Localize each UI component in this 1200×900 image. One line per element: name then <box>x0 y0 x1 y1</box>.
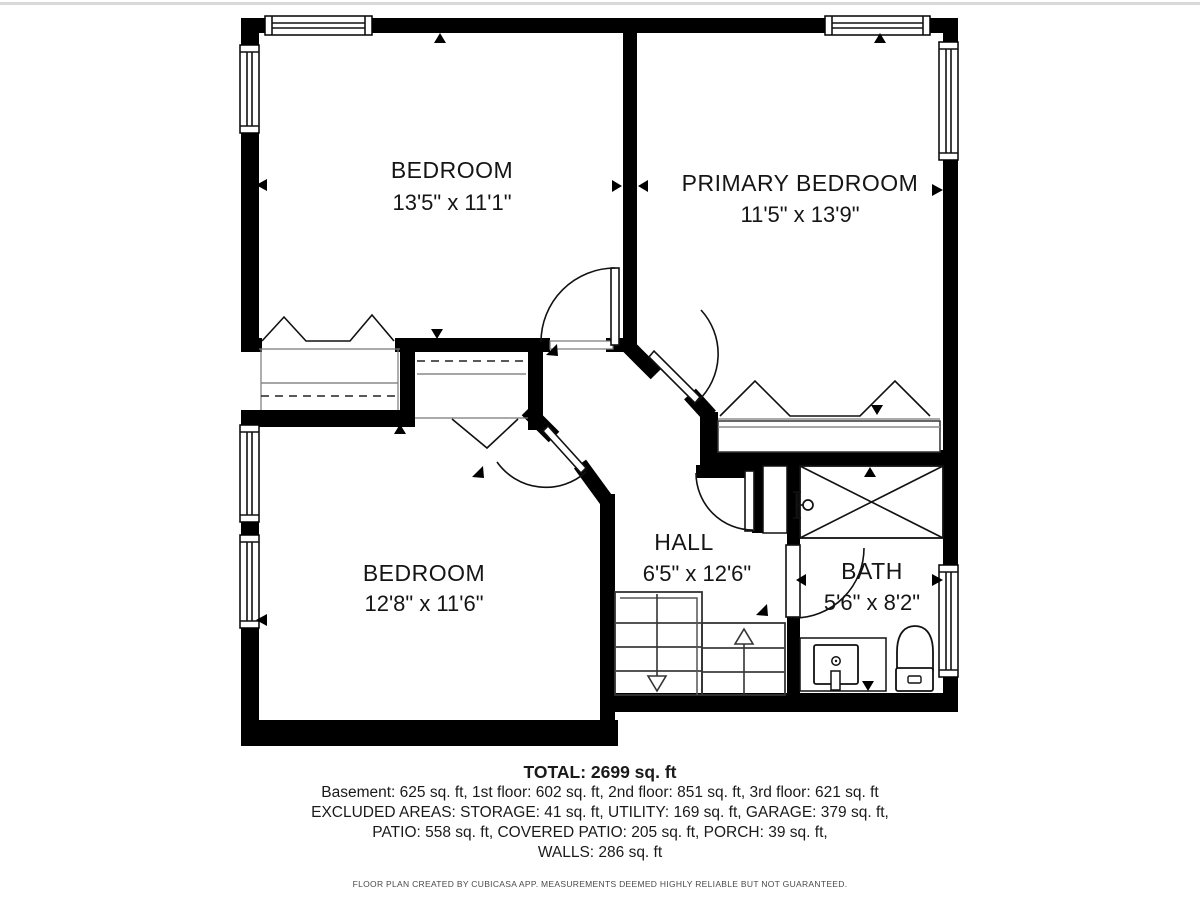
vanity-sink <box>800 638 886 691</box>
label-bedroom-tl: BEDROOM 13'5" x 11'1" <box>391 157 513 215</box>
label-hall: HALL 6'5" x 12'6" <box>643 529 751 586</box>
room-dims: 5'6" x 8'2" <box>824 590 920 615</box>
toilet <box>896 626 933 691</box>
floors-area-line: Basement: 625 sq. ft, 1st floor: 602 sq.… <box>0 783 1200 803</box>
patio-porch-line: PATIO: 558 sq. ft, COVERED PATIO: 205 sq… <box>0 823 1200 843</box>
room-name: HALL <box>654 529 714 555</box>
window-bedroom-tl-left <box>240 45 259 133</box>
label-bath: BATH 5'6" x 8'2" <box>824 558 920 615</box>
door-bedroom-tl <box>541 268 619 349</box>
window-primary-right <box>939 42 958 160</box>
page-top-divider <box>0 2 1200 5</box>
window-bedroom-bl-left-lower <box>240 535 259 628</box>
walls-area-line: WALLS: 286 sq. ft <box>0 843 1200 863</box>
room-dims: 12'8" x 11'6" <box>364 591 483 616</box>
room-name: BEDROOM <box>391 157 513 183</box>
room-name: BEDROOM <box>363 560 485 586</box>
room-name: BATH <box>841 558 903 584</box>
stairs-up-arrow <box>735 629 753 644</box>
room-name: PRIMARY BEDROOM <box>682 170 919 196</box>
room-dims: 11'5" x 13'9" <box>740 202 859 227</box>
area-summary: TOTAL: 2699 sq. ft Basement: 625 sq. ft,… <box>0 762 1200 889</box>
window-bath-right <box>939 565 958 677</box>
closet-bedroom-tl <box>259 315 400 410</box>
window-bedroom-tl-top <box>265 16 372 35</box>
door-bedroom-bl <box>497 426 586 487</box>
room-dims: 6'5" x 12'6" <box>643 561 751 586</box>
label-bedroom-bl: BEDROOM 12'8" x 11'6" <box>363 560 485 616</box>
window-bedroom-bl-left-upper <box>240 425 259 522</box>
closet-primary <box>718 381 940 452</box>
room-dims: 13'5" x 11'1" <box>392 190 511 215</box>
disclaimer-text: FLOOR PLAN CREATED BY CUBICASA APP. MEAS… <box>0 879 1200 889</box>
window-primary-top <box>825 16 930 35</box>
stairs-down-arrow <box>648 676 666 691</box>
stairs-down-flight <box>615 592 702 695</box>
excluded-areas-line: EXCLUDED AREAS: STORAGE: 41 sq. ft, UTIL… <box>0 803 1200 823</box>
label-primary-bedroom: PRIMARY BEDROOM 11'5" x 13'9" <box>682 170 919 227</box>
walls <box>241 18 958 746</box>
door-primary <box>649 310 718 403</box>
floorplan-page: BEDROOM 13'5" x 11'1" PRIMARY BEDROOM 11… <box>0 0 1200 900</box>
total-area: TOTAL: 2699 sq. ft <box>0 762 1200 783</box>
stairs-up-flight <box>702 623 785 695</box>
closet-center <box>415 361 528 448</box>
stairs <box>615 592 785 695</box>
room-labels: BEDROOM 13'5" x 11'1" PRIMARY BEDROOM 11… <box>363 157 920 616</box>
